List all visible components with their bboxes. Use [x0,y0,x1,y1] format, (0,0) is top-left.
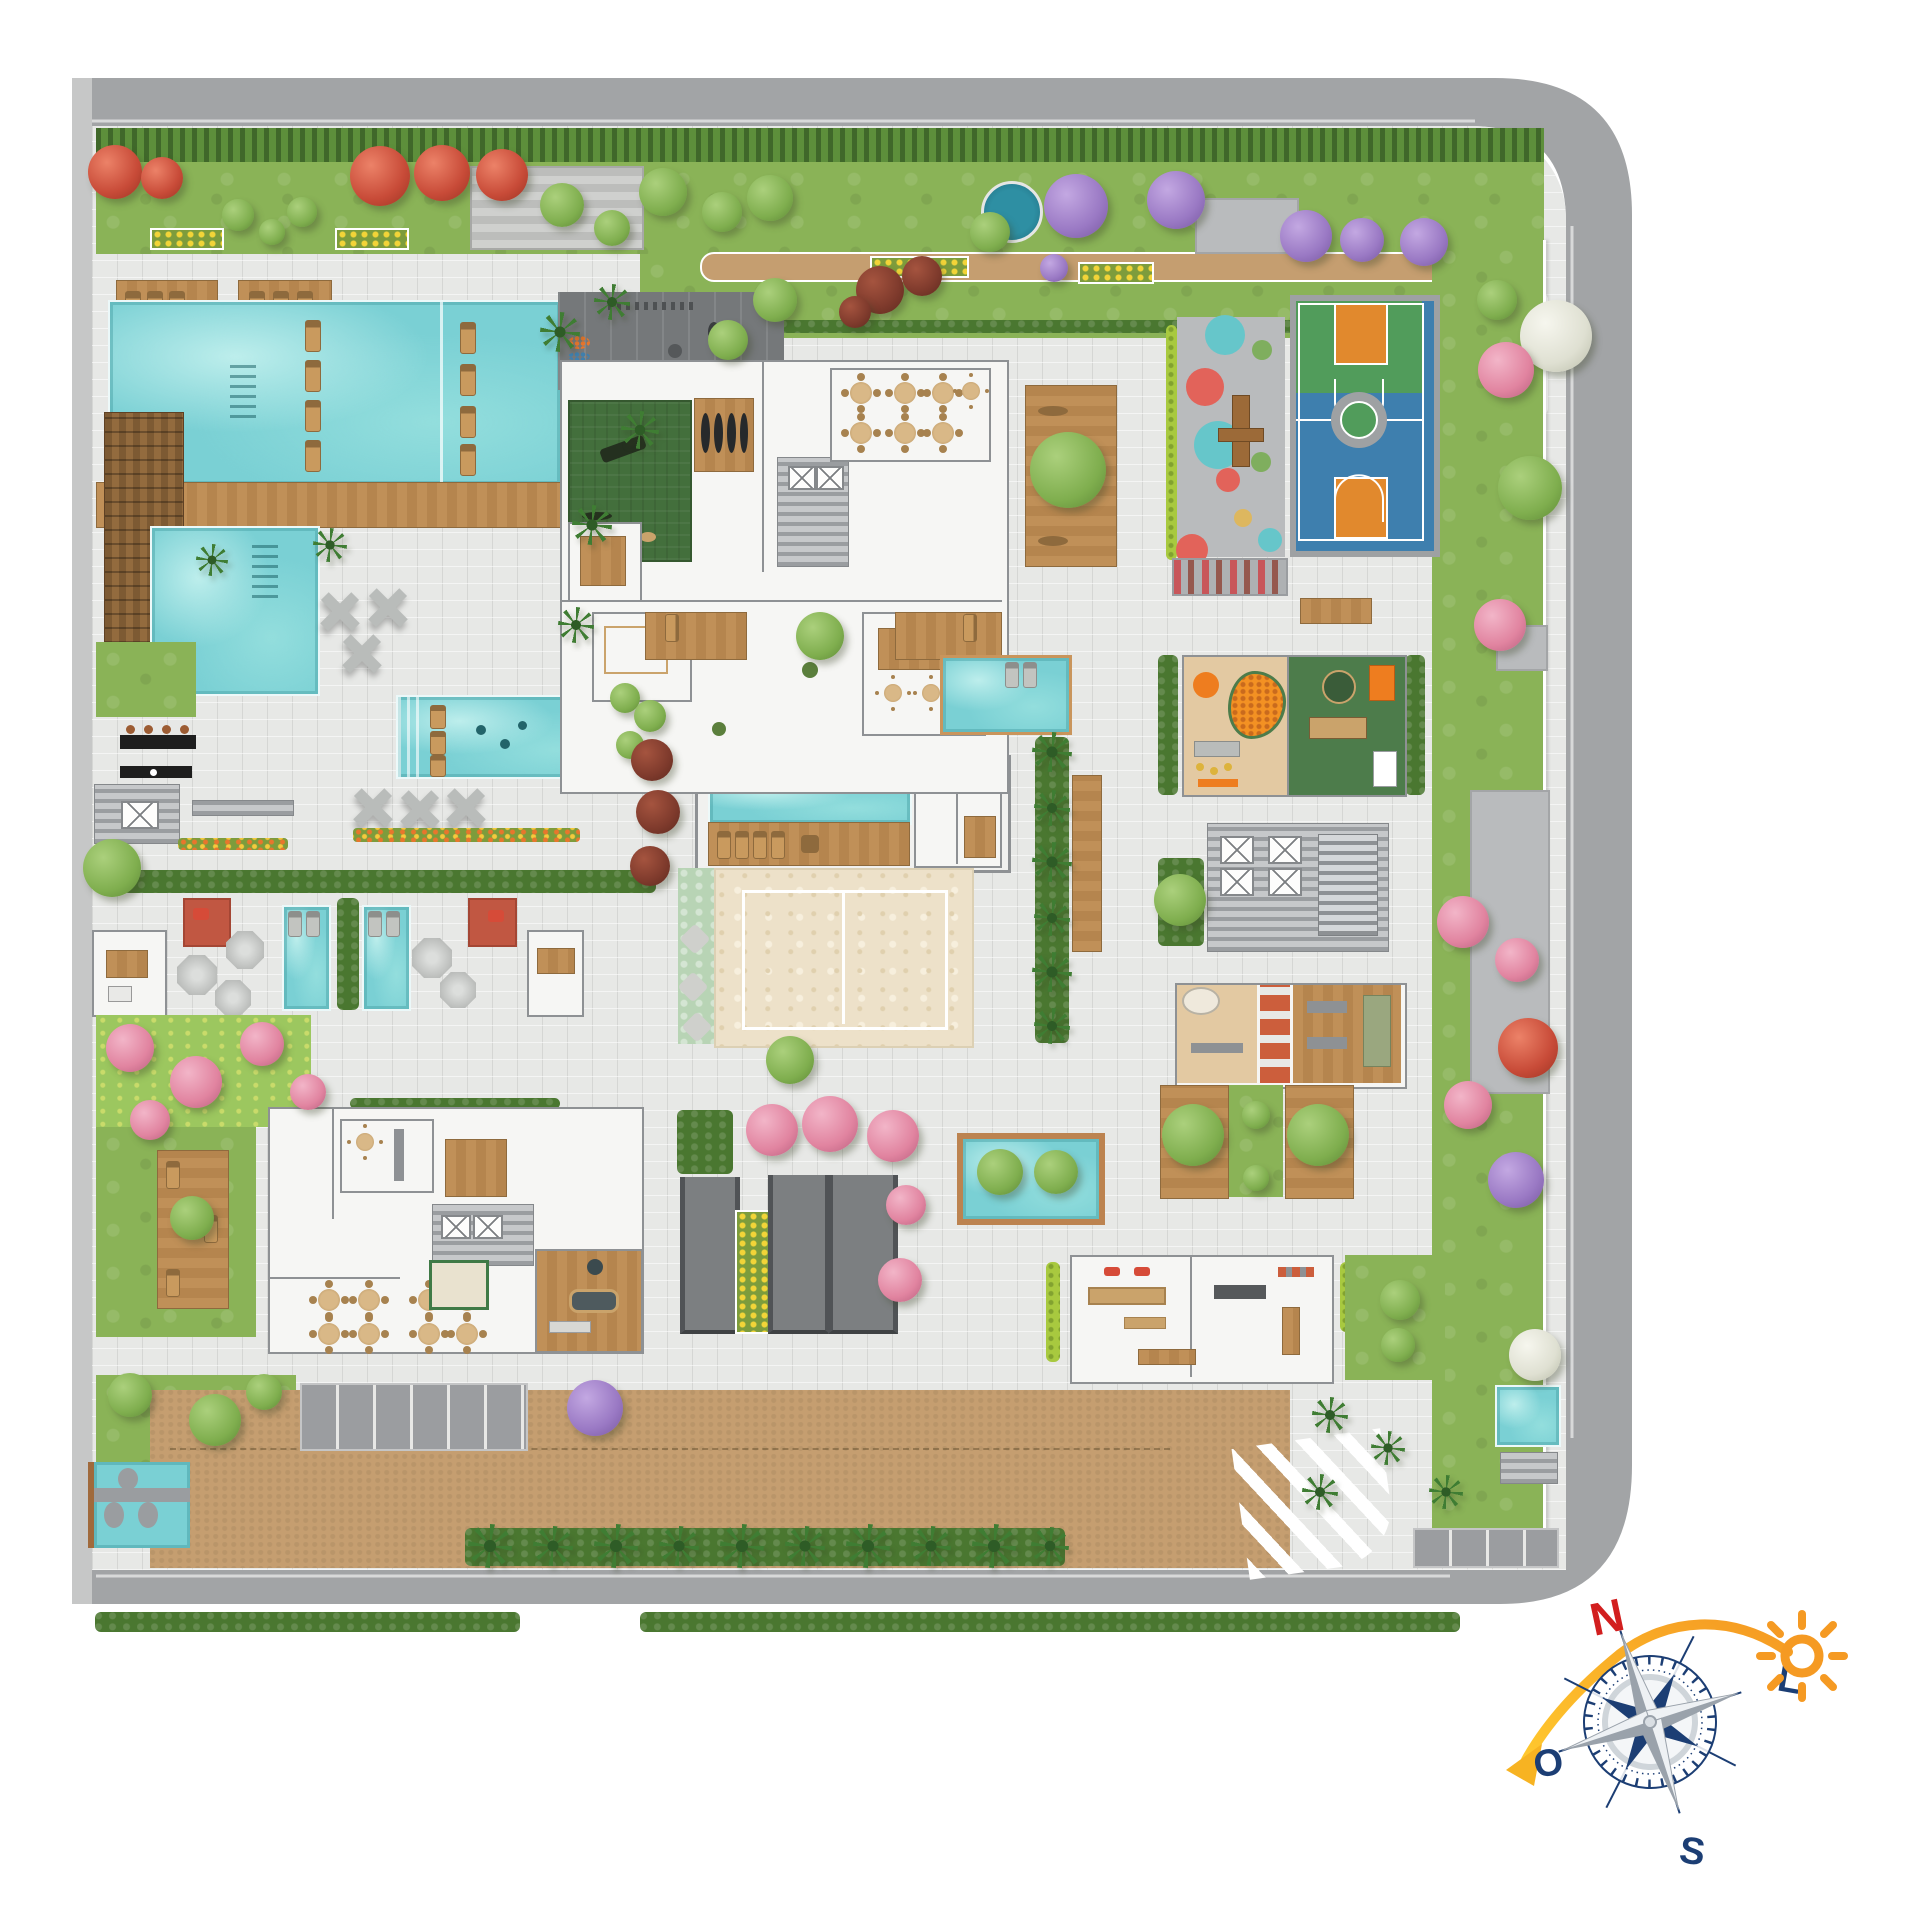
tree [1030,432,1106,508]
play-circle [1186,368,1224,406]
lounger [288,911,302,937]
tree [839,296,871,328]
lounger [166,1269,180,1297]
furniture-dot [138,1502,158,1528]
furniture-dot [1038,406,1068,416]
tree [106,1024,154,1072]
tree [88,145,142,199]
plan-element [106,950,148,978]
furniture-dot [126,725,135,734]
line-element [1824,1625,1833,1634]
garage-ramp [768,1175,830,1334]
plan-element [1278,1267,1314,1277]
tower1-core [777,457,849,567]
tree [902,256,942,296]
spa-umbrella [412,938,452,978]
dining-table [356,1133,374,1151]
plan-element [1124,1317,1166,1329]
furniture-dot [1224,763,1232,771]
tree [1044,174,1108,238]
tree [1478,342,1534,398]
furniture-dot [1210,767,1218,775]
tree [1040,254,1068,282]
furniture-dot [714,413,723,453]
plan-element [94,1488,190,1502]
key-top [1334,303,1388,365]
compass-label-west: O [1530,1740,1566,1786]
plan-element [270,1277,400,1279]
furniture-dot [1134,1267,1150,1276]
palm-tree-icon [540,312,580,352]
plan-element [1138,1349,1196,1365]
tree [170,1056,222,1108]
party-room [830,368,991,462]
plan-element [562,600,1002,602]
southeast-steps [1500,1452,1558,1484]
plan-element [549,1321,591,1333]
tree [867,1110,919,1162]
palm-tree-icon [1031,1527,1069,1565]
lounger [460,322,476,354]
plan-element [842,890,845,1024]
phone-booths [1260,985,1290,1083]
tree [878,1258,922,1302]
lounger [306,911,320,937]
palm-tree-icon [621,411,659,449]
tree [970,212,1010,252]
plan-element [537,948,575,974]
tree [414,145,470,201]
plan-element [1293,985,1401,1083]
west-stair-core [94,784,180,844]
plan-element [1309,717,1367,739]
ball-pit [1228,671,1286,739]
lounger [460,406,476,438]
lounger [305,440,321,472]
furniture-dot [518,721,527,730]
bench-row [1300,598,1372,624]
outdoor-fitness-strip [1172,558,1288,596]
tree [746,1104,798,1156]
plan-element [108,986,132,1002]
spa-umbrella [215,980,251,1016]
dining-table [456,1323,478,1345]
dining-table [962,382,980,400]
flower-planter [150,228,224,250]
palm-tree-icon [659,1526,699,1566]
flower-planter [1078,262,1154,284]
palm-tree-icon [972,1524,1016,1568]
palm-tree-icon [1032,732,1072,772]
tree [1381,1328,1415,1362]
plan-element [1363,995,1391,1067]
palm-tree-icon [720,1524,764,1568]
dining-table [418,1323,440,1345]
palm-tree-icon [196,544,228,576]
tree [1287,1104,1349,1166]
g-element [1760,1614,1844,1698]
play-circle [1322,670,1356,704]
tree [886,1185,926,1225]
plan-element [394,1129,404,1181]
lounger [430,731,446,755]
compass-label-north: N [1585,1588,1628,1646]
furniture-dot [476,725,486,735]
palm-tree-icon [533,1526,573,1566]
furniture-dot [1104,1267,1120,1276]
reflecting-pool [940,655,1072,735]
kitchen-island [1214,1285,1266,1299]
garden-pergola [645,612,747,660]
tree [1243,1165,1269,1191]
spa-kitchen-east [527,930,584,1017]
plunge-pool [282,905,331,1011]
wellness-planter-w [1046,1262,1060,1362]
promenade-steps [192,800,294,816]
bbq-bar [120,766,192,778]
furniture-dot [193,908,209,920]
bbq-counter [120,735,196,749]
flower-ribbon [353,828,580,842]
furniture-dot [144,725,153,734]
tree [1154,874,1206,926]
line-element [1824,1678,1833,1687]
lounger [460,444,476,476]
furniture-dot [180,725,189,734]
ramp-ivy [677,1110,733,1174]
tree [1162,1104,1224,1166]
furniture-dot [1038,536,1068,546]
lounger [305,320,321,352]
palm-tree-icon [1032,952,1072,992]
spa-kitchen-west [92,930,167,1017]
dining-table [318,1323,340,1345]
plan-element [440,302,443,484]
plan-element [1194,741,1240,757]
lounger [963,614,977,642]
dining-table [894,382,916,404]
tree [540,183,584,227]
wellness-building [1070,1255,1334,1384]
play-circle [1205,315,1245,355]
dining-table [884,684,902,702]
tree [1488,1152,1544,1208]
plan-element [788,466,816,490]
spa-divider-hedge [337,898,359,1010]
tree [630,846,670,886]
tree [108,1373,152,1417]
lounger [430,705,446,729]
spa-red-mat [183,898,231,947]
lounger [1023,662,1037,688]
street-hedge [640,1612,1460,1632]
lap-pool-deck [708,822,910,866]
play-circle [1216,468,1240,492]
plan-element [1268,868,1302,896]
plan-element [1340,401,1378,439]
tree [1474,599,1526,651]
palm-bed [1035,737,1069,1043]
palm-tree-icon [1312,1397,1348,1433]
plan-element [1373,751,1397,787]
palm-tree-icon [1371,1431,1405,1465]
plan-element [1369,665,1395,701]
palm-tree-icon [1429,1475,1463,1509]
plan-element [1198,779,1238,787]
sun-icon [1760,1614,1844,1698]
tree [977,1149,1023,1195]
tower2-core [1207,823,1389,952]
tree [240,1022,284,1066]
furniture-dot [668,344,682,358]
furniture-dot [640,532,656,542]
lounger [753,831,767,859]
palm-tree-icon [1034,900,1070,936]
tree [246,1374,282,1410]
tree [259,219,285,245]
tree [1444,1081,1492,1129]
plan-element [473,1215,503,1239]
show-kitchen [429,1260,489,1310]
lounger [1005,662,1019,688]
furniture-dot [488,910,504,922]
plan-element [1318,834,1378,936]
tower3-core [432,1204,534,1266]
left-sidewalk [72,78,92,1604]
spa-red-mat [468,898,517,947]
tree [290,1074,326,1110]
lounger [717,831,731,859]
furniture-dot [681,1011,712,1042]
plunge-pool [362,905,411,1011]
palm-tree-icon [1034,1008,1070,1044]
pergola-lounge [1072,775,1102,952]
tree [747,175,793,221]
lounger [166,1161,180,1189]
lounger [771,831,785,859]
beach-volleyball-court [714,868,974,1048]
palm-tree-icon [594,284,630,320]
plan-element [1282,1307,1300,1355]
tree [1280,210,1332,262]
plan-element [441,1215,471,1239]
lounger [460,364,476,396]
palm-tree-icon [558,607,594,643]
tree [631,739,673,781]
furniture-dot [727,413,736,453]
furniture-dot [118,1468,138,1490]
playground [1177,317,1285,557]
plan-element [398,697,424,777]
lounger [386,911,400,937]
plan-element [762,362,764,572]
billiard-table [569,1289,619,1313]
perimeter-hedge [96,128,1544,164]
tower3-bar [340,1119,434,1193]
garage-ramp [680,1177,740,1334]
tree [130,1100,170,1140]
tree [287,197,317,227]
furniture-dot [802,662,818,678]
ramp-flower-strip [735,1210,771,1334]
lounger [430,755,446,777]
play-circle [1234,509,1252,527]
palm-tree-icon [785,1526,825,1566]
basketball-court [1290,295,1440,557]
pool-west-lawn [96,642,196,717]
tree [1509,1329,1561,1381]
plan-element [1220,868,1254,896]
kids-ball-pit-room [1182,655,1291,797]
dining-table [850,422,872,444]
furniture-dot [701,413,710,453]
plan-element [332,1109,334,1219]
palm-tree-icon [1302,1474,1338,1510]
palm-tree-icon [313,528,347,562]
dining-table [922,684,940,702]
palm-tree-icon [468,1524,512,1568]
plan-element [964,816,996,858]
tree [708,320,748,360]
palm-tree-icon [1034,790,1070,826]
play-circle [1193,672,1219,698]
lounger [368,911,382,937]
moss-path [678,868,714,1044]
dining-table [358,1289,380,1311]
plan-element [1334,474,1384,522]
play-circle [1251,452,1271,472]
amenity-building-south [268,1107,644,1354]
tree [636,790,680,834]
street-hedge [95,1612,520,1632]
tree [476,149,528,201]
palm-tree-icon [911,1526,951,1566]
tree [639,168,687,216]
tree [753,278,797,322]
plan-element [1307,1037,1347,1049]
tree [1498,1018,1558,1078]
lounger [735,831,749,859]
tree [1242,1101,1270,1129]
plan-element [1191,1043,1243,1053]
plan-element [742,890,948,1030]
dining-table [894,422,916,444]
dining-table [318,1289,340,1311]
site-plan-canvas: N L S O [0,0,1920,1920]
spa-umbrella [440,972,476,1008]
play-circle [1258,528,1282,552]
palm-tree-icon [846,1524,890,1568]
tree [766,1036,814,1084]
tree [802,1096,858,1152]
tree [796,612,844,660]
compass-label-south: S [1677,1829,1708,1874]
tree [1340,218,1384,262]
tree [222,199,254,231]
tower3-wood-hall [445,1139,507,1197]
spa-umbrella [177,955,217,995]
plan-element [1088,1287,1166,1305]
flower-planter [335,228,409,250]
weights-gym [694,398,754,472]
compass-rose: N L S O [1470,1560,1870,1880]
tree [594,210,630,246]
billiards-room [535,1249,643,1353]
tree [1380,1280,1420,1320]
tree [1034,1150,1078,1194]
tree [83,839,141,897]
palm-tree-icon [1032,842,1072,882]
palm-tree-icon [572,505,612,545]
tree [1498,456,1562,520]
plan-element [121,801,159,829]
dining-table [850,382,872,404]
furniture-dot [162,725,171,734]
lounger [665,614,679,642]
tree [170,1196,214,1240]
furniture-dot [801,835,819,853]
plan-element [1220,836,1254,864]
dining-table [932,382,954,404]
lounger [305,400,321,432]
coworking-rooms [1175,983,1407,1089]
tree [189,1394,241,1446]
furniture-dot [150,769,157,776]
tree [1477,280,1517,320]
lounger [305,360,321,392]
play-circle [1252,340,1272,360]
tree [567,1380,623,1436]
palm-tree-icon [594,1524,638,1568]
playground-hedge [1166,325,1177,560]
southeast-plunge-pool [1495,1385,1561,1447]
tower2-hedge-e [1405,655,1425,795]
tree [141,157,183,199]
plan-element [816,466,844,490]
dining-table [358,1323,380,1345]
parking-bays-west [300,1383,528,1451]
furniture-dot [679,923,710,954]
tree [1147,171,1205,229]
games-room [1287,655,1407,797]
furniture-dot [104,1502,124,1528]
tree [350,146,410,206]
play-structure-arm [1218,428,1264,442]
promenade-hedge [96,870,656,893]
furniture-dot [740,413,748,453]
tree [1400,218,1448,266]
tree [1437,896,1489,948]
dining-table [932,422,954,444]
furniture-dot [500,739,510,749]
plan-element [230,362,256,418]
play-circle [587,1259,603,1275]
tower2-hedge-w [1158,655,1178,795]
plan-element [1268,836,1302,864]
play-circle [1182,987,1220,1015]
tree [1495,938,1539,982]
plan-element [1307,1001,1347,1013]
tree [702,192,742,232]
line-element [1771,1625,1780,1634]
plan-element [252,538,278,598]
spa-umbrella [226,931,264,969]
flower-ribbon [178,838,288,850]
furniture-dot [677,971,708,1002]
furniture-dot [712,722,726,736]
garden-pergola [895,612,1002,660]
tree [634,700,666,732]
